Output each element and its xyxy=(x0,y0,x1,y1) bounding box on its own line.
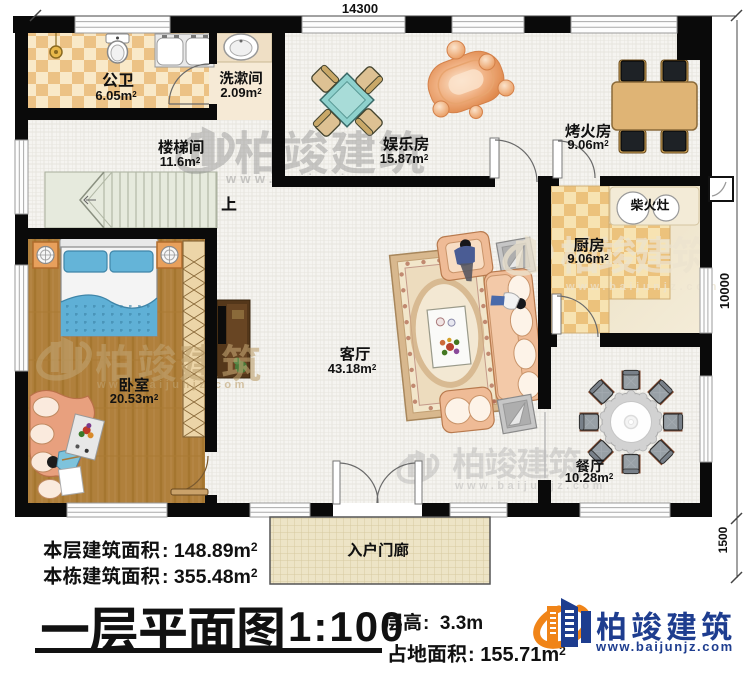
svg-text:20.53m2: 20.53m2 xyxy=(110,391,159,406)
svg-text:6.05m2: 6.05m2 xyxy=(95,88,137,103)
svg-text:15.87m2: 15.87m2 xyxy=(380,151,429,166)
svg-text:: 3.3m: : 3.3m xyxy=(423,613,483,634)
svg-text:10000: 10000 xyxy=(717,273,732,309)
svg-text:www.baijunjz.com: www.baijunjz.com xyxy=(565,281,720,293)
svg-text:2.09m2: 2.09m2 xyxy=(220,85,262,100)
svg-text:1500: 1500 xyxy=(716,526,730,553)
svg-text:www.baijunjz.com: www.baijunjz.com xyxy=(595,639,734,654)
svg-text:14300: 14300 xyxy=(342,1,378,16)
svg-text:10.28m2: 10.28m2 xyxy=(565,470,614,485)
svg-text:: 148.89m2: : 148.89m2 xyxy=(162,540,258,562)
svg-text:9.06m2: 9.06m2 xyxy=(567,137,609,152)
svg-text:www.baijunjz.com: www.baijunjz.com xyxy=(96,379,248,391)
svg-text:9.06m2: 9.06m2 xyxy=(567,251,609,266)
svg-text:: 355.48m2: : 355.48m2 xyxy=(162,566,258,588)
svg-text:43.18m2: 43.18m2 xyxy=(328,361,377,376)
svg-text:11.6m2: 11.6m2 xyxy=(160,154,201,169)
